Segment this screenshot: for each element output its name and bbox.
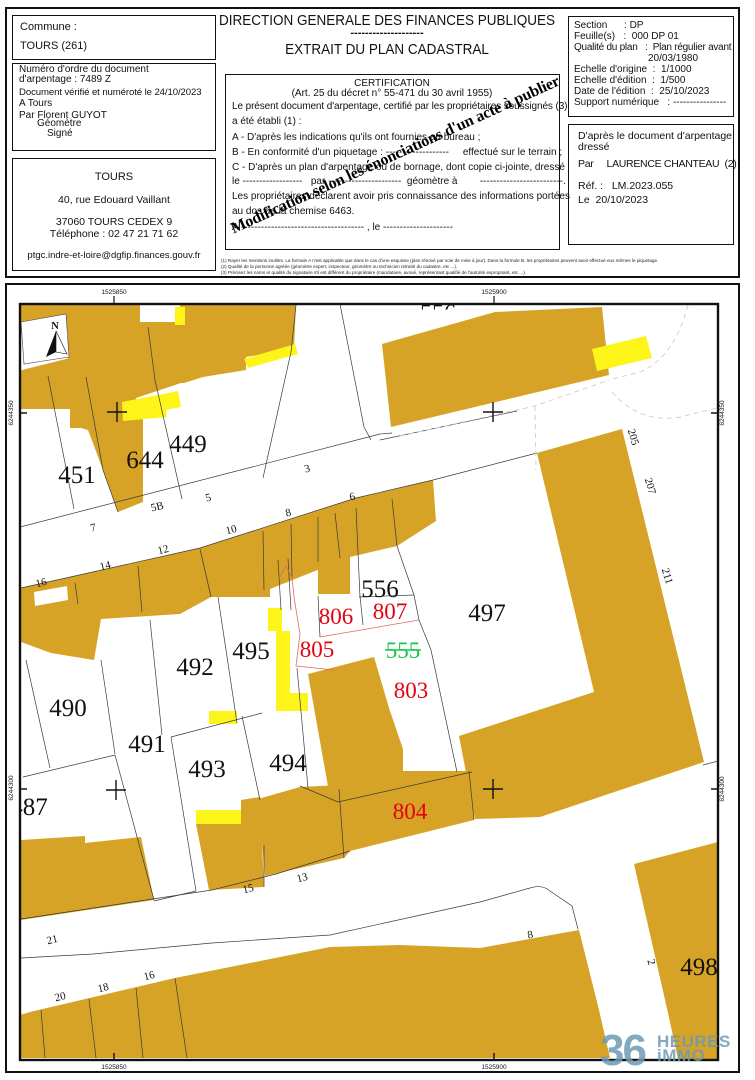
svg-text:6244350: 6244350 [8, 400, 15, 426]
svg-text:497: 497 [468, 600, 506, 627]
svg-text:5B: 5B [150, 500, 165, 515]
svg-text:21: 21 [45, 933, 59, 947]
svg-text:8: 8 [284, 506, 293, 519]
svg-text:6244350: 6244350 [719, 400, 726, 426]
svg-text:805: 805 [300, 637, 335, 662]
svg-text:493: 493 [188, 756, 226, 783]
svg-text:2: 2 [644, 958, 657, 967]
svg-text:1525850: 1525850 [101, 289, 127, 296]
svg-text:451: 451 [58, 462, 96, 489]
svg-text:N: N [51, 321, 59, 332]
svg-text:495: 495 [232, 638, 270, 665]
svg-text:492: 492 [176, 654, 214, 681]
svg-text:806: 806 [319, 604, 354, 629]
svg-text:6244300: 6244300 [8, 775, 15, 801]
svg-text:8: 8 [526, 929, 534, 942]
svg-text:20: 20 [53, 990, 67, 1004]
svg-text:1525850: 1525850 [101, 1064, 127, 1071]
svg-text:10: 10 [224, 523, 238, 537]
svg-text:644: 644 [126, 447, 164, 474]
svg-text:5: 5 [204, 491, 213, 504]
svg-text:491: 491 [128, 731, 166, 758]
svg-text:803: 803 [394, 678, 429, 703]
svg-text:487: 487 [10, 794, 48, 821]
svg-text:3: 3 [303, 462, 312, 475]
svg-text:211: 211 [659, 567, 675, 586]
svg-text:804: 804 [393, 799, 428, 824]
svg-text:1525900: 1525900 [481, 289, 507, 296]
svg-text:490: 490 [49, 695, 87, 722]
svg-text:449: 449 [169, 431, 207, 458]
svg-text:7: 7 [89, 521, 98, 534]
svg-text:207: 207 [642, 476, 658, 496]
svg-text:1525900: 1525900 [481, 1064, 507, 1071]
svg-text:205: 205 [625, 427, 641, 447]
svg-text:494: 494 [269, 750, 307, 777]
svg-text:807: 807 [373, 599, 408, 624]
svg-text:13: 13 [295, 871, 309, 885]
svg-text:16: 16 [142, 969, 156, 983]
svg-text:6244300: 6244300 [719, 776, 726, 802]
svg-text:18: 18 [96, 981, 110, 995]
svg-text:498: 498 [680, 954, 718, 981]
